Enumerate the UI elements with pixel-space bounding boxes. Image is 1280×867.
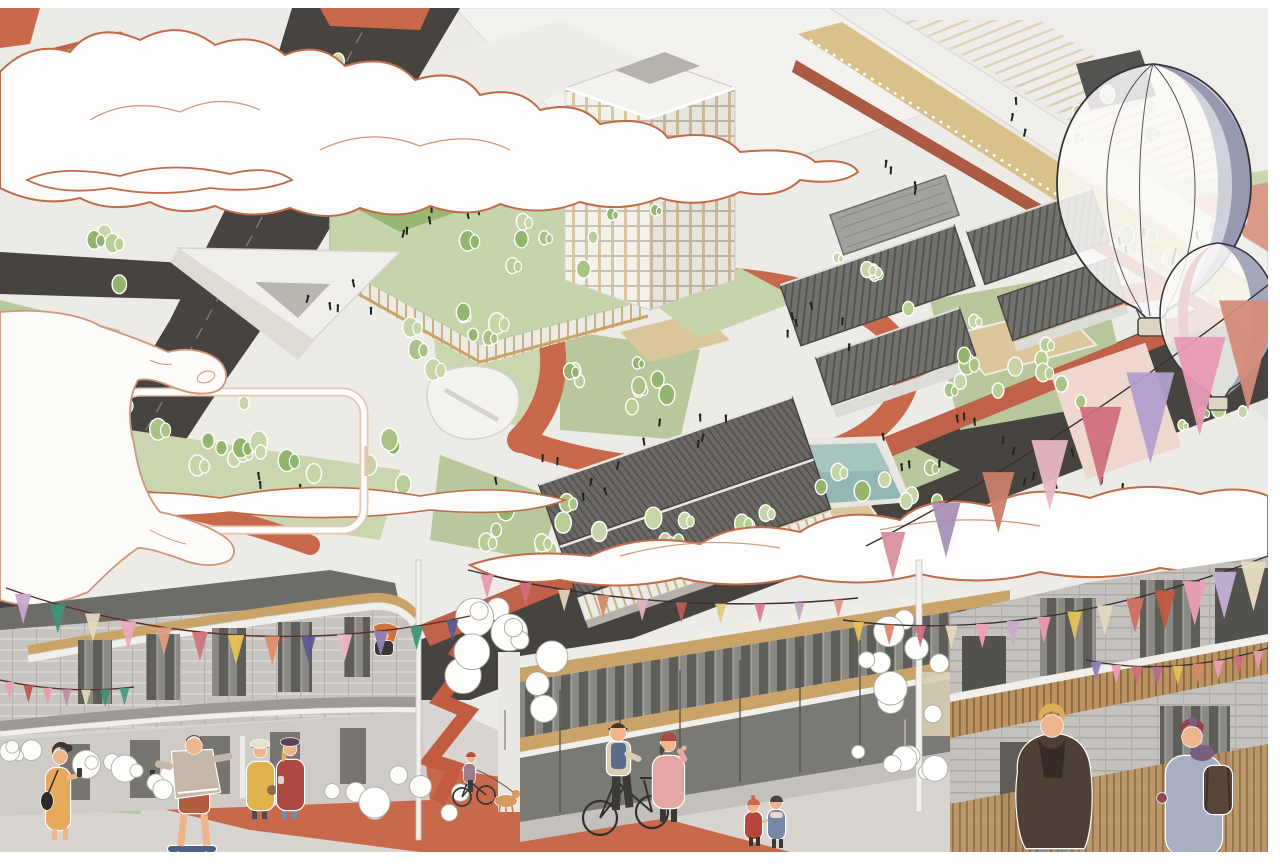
illustration-canvas xyxy=(0,0,1280,867)
cloud-strip-left xyxy=(27,167,292,193)
scene-svg xyxy=(0,0,1280,867)
margin-bottom xyxy=(0,852,1280,867)
margin-right xyxy=(1268,0,1280,867)
lamp-post xyxy=(416,560,421,840)
margin-top xyxy=(0,0,1280,8)
